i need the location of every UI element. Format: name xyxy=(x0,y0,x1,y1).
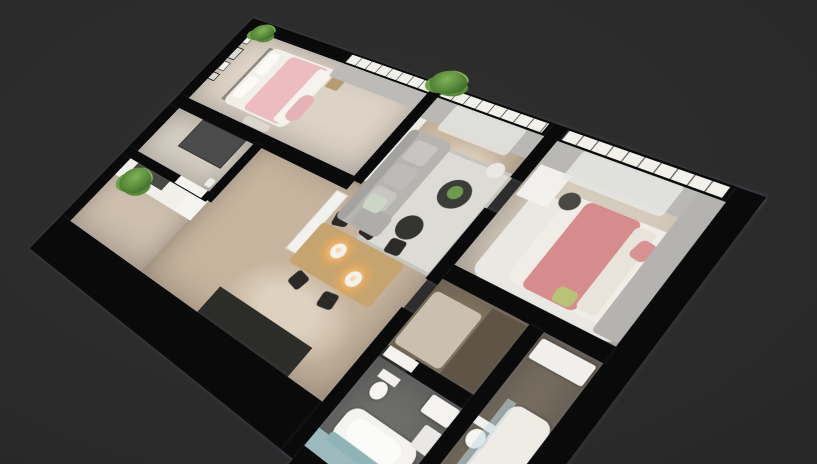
floor-plan xyxy=(25,18,766,464)
floorplan-3d-viewport[interactable] xyxy=(0,0,817,464)
